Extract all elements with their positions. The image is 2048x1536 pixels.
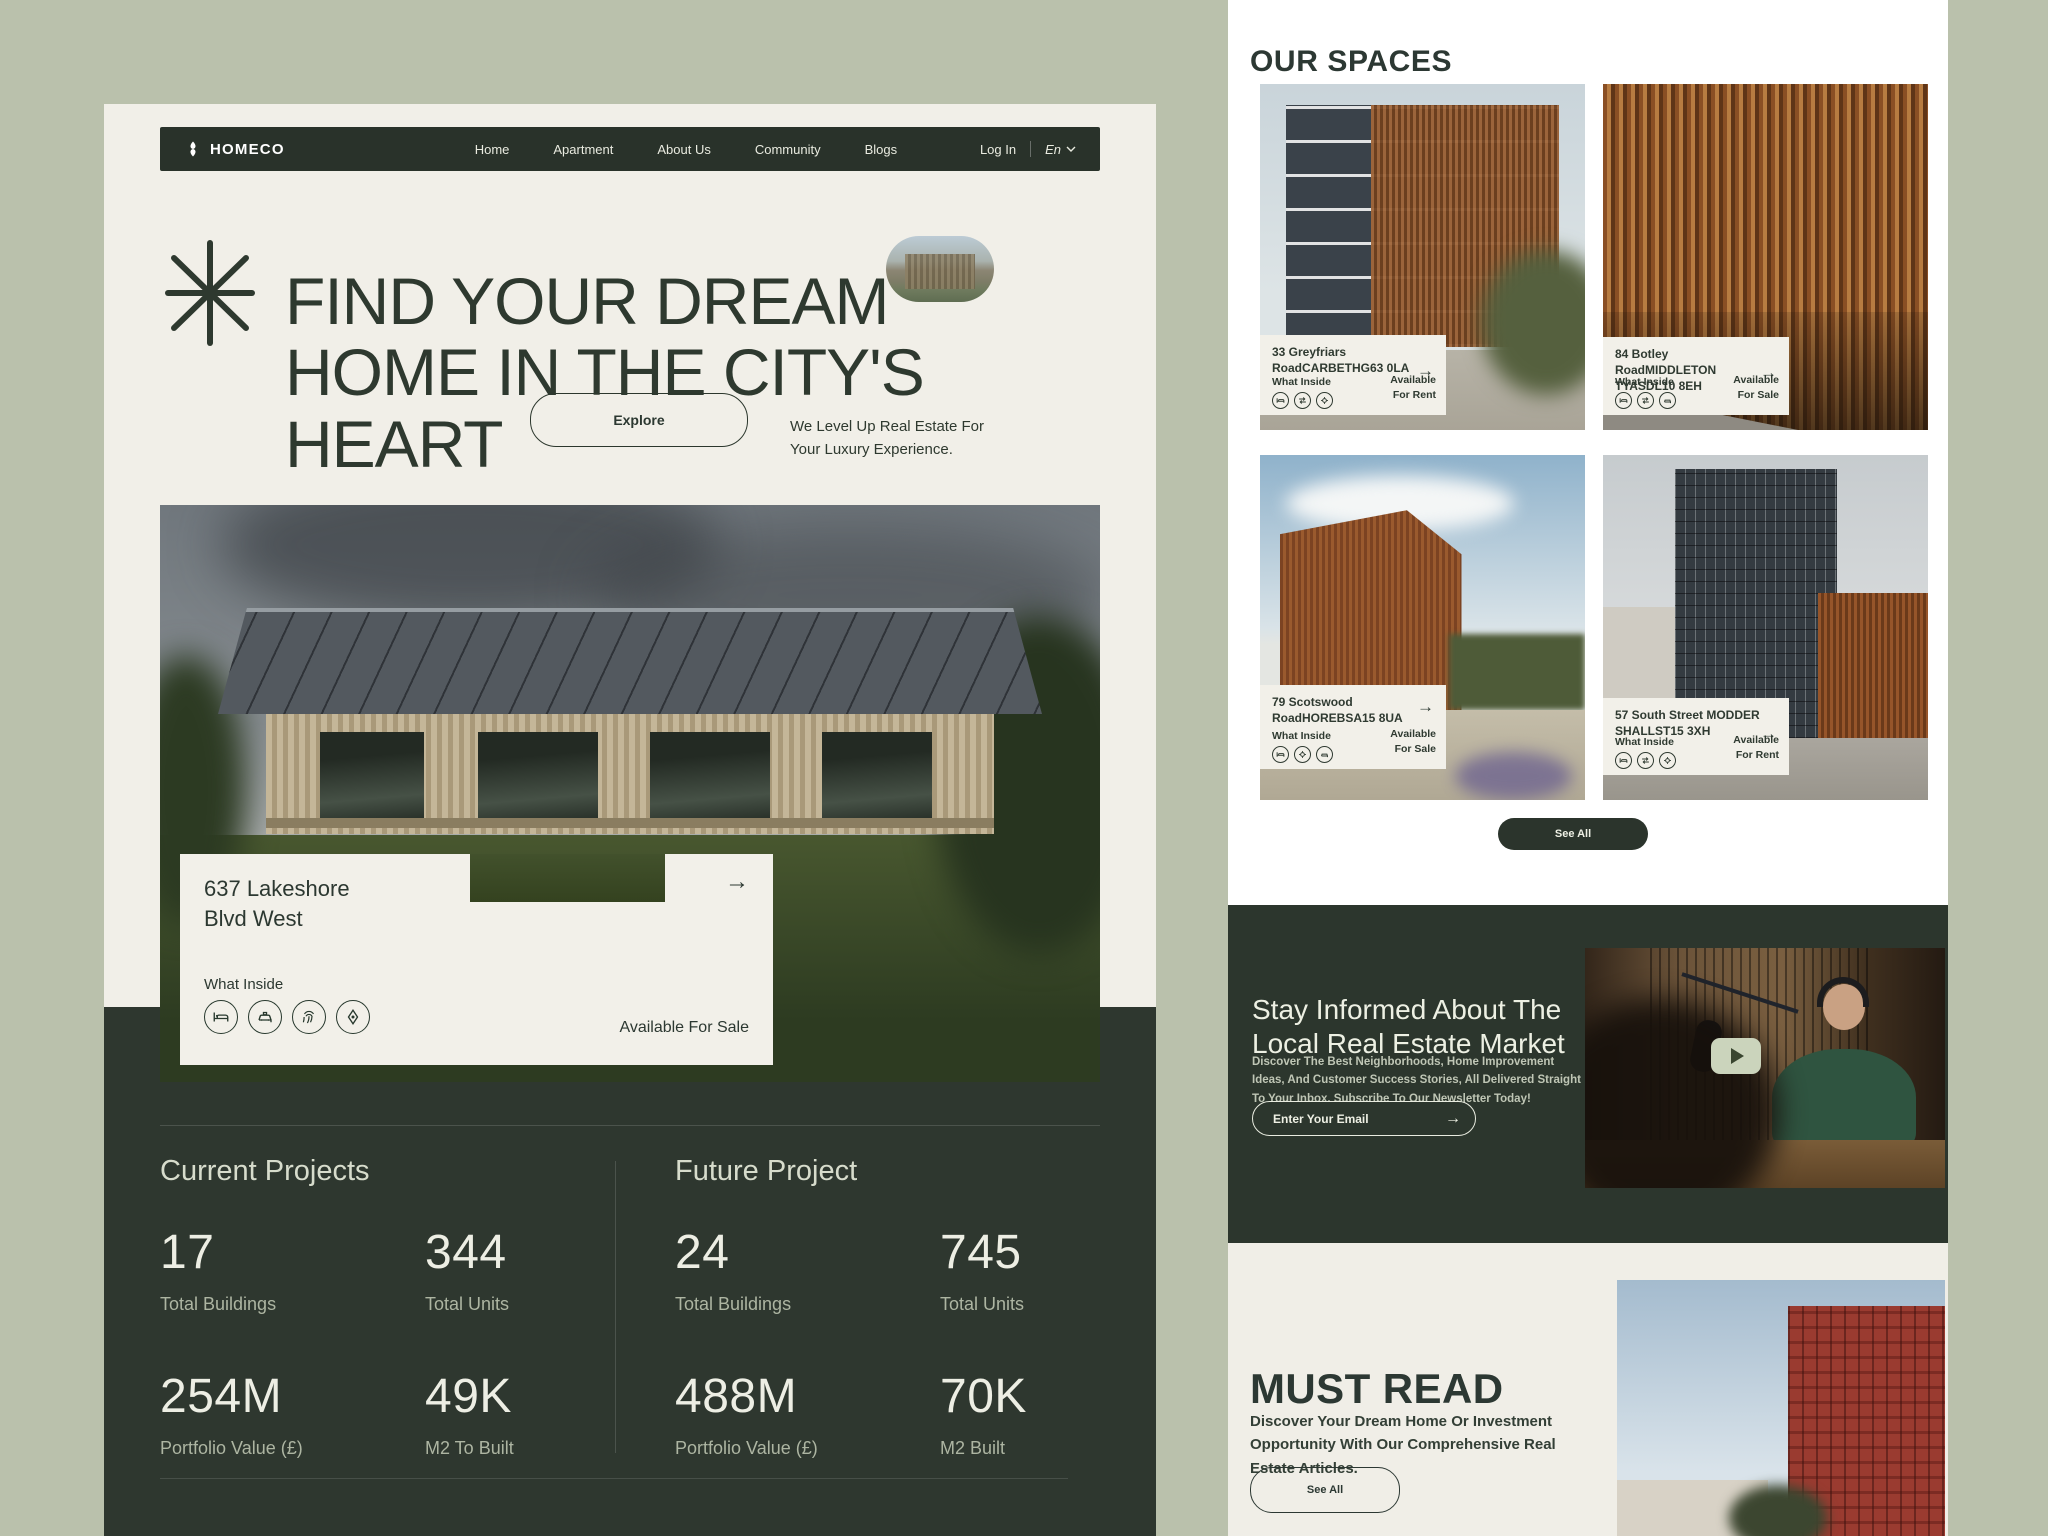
transfer-arrows-icon[interactable] xyxy=(1294,392,1311,409)
stat-label: Portfolio Value (£) xyxy=(160,1438,410,1459)
transfer-arrows-icon[interactable] xyxy=(1637,392,1654,409)
bed-icon[interactable] xyxy=(1615,392,1632,409)
what-inside-label: What Inside xyxy=(204,976,283,993)
logo-text: HOMECO xyxy=(210,141,285,158)
gear-icon[interactable] xyxy=(1659,752,1676,769)
car-icon[interactable] xyxy=(1316,746,1333,763)
must-read-title: MUST READ xyxy=(1250,1365,1503,1413)
hero-tagline: We Level Up Real Estate For Your Luxury … xyxy=(790,415,984,462)
photo-layer xyxy=(1772,1049,1916,1155)
play-button[interactable] xyxy=(1711,1038,1761,1074)
logo-icon xyxy=(184,140,202,158)
availability-status: Available For Rent xyxy=(1390,373,1436,405)
what-inside-label: What Inside xyxy=(1272,376,1331,388)
stat-value: 488M xyxy=(675,1369,925,1424)
photo-layer xyxy=(478,732,598,818)
nav-item-blogs[interactable]: Blogs xyxy=(865,142,898,157)
language-label: En xyxy=(1045,142,1061,157)
availability-status: Available For Sale xyxy=(619,1019,749,1037)
property-info-overlay: 33 Greyfriars RoadCARBETHG63 0LA → What … xyxy=(1260,335,1446,415)
availability-status: Available For Rent xyxy=(1733,733,1779,765)
property-info-overlay: 57 South Street MODDER SHALLST15 3XH → W… xyxy=(1603,698,1789,775)
our-spaces-title: OUR SPACES xyxy=(1250,45,1452,79)
language-selector[interactable]: En xyxy=(1045,142,1076,157)
podcast-video-thumbnail xyxy=(1585,948,1945,1188)
stat-item: 70K M2 Built xyxy=(940,1369,1156,1459)
amenity-icons xyxy=(1272,392,1333,409)
divider xyxy=(160,1478,1068,1479)
property-card[interactable]: 33 Greyfriars RoadCARBETHG63 0LA → What … xyxy=(1260,84,1585,430)
bed-icon[interactable] xyxy=(204,1000,238,1034)
what-inside-label: What Inside xyxy=(1615,376,1674,388)
availability-status: Available For Sale xyxy=(1733,373,1779,405)
our-spaces-section: OUR SPACES 33 Greyfriars RoadCARBETHG63 … xyxy=(1228,0,1948,905)
email-subscribe-field[interactable]: → xyxy=(1252,1101,1476,1136)
stat-item: 24 Total Buildings xyxy=(675,1225,925,1315)
nav-item-community[interactable]: Community xyxy=(755,142,821,157)
hero-house-photo: 637 Lakeshore Blvd West → What Inside xyxy=(160,505,1100,1082)
photo-layer xyxy=(230,608,1030,840)
stat-item: 745 Total Units xyxy=(940,1225,1156,1315)
chevron-down-icon xyxy=(1066,146,1076,153)
listing-address: 637 Lakeshore Blvd West xyxy=(204,874,350,933)
photo-layer xyxy=(650,732,770,818)
divider xyxy=(160,1125,1100,1126)
photo-layer xyxy=(905,254,974,288)
stat-value: 70K xyxy=(940,1369,1156,1424)
gear-icon[interactable] xyxy=(1316,392,1333,409)
availability-status: Available For Sale xyxy=(1390,727,1436,759)
stat-item: 49K M2 To Built xyxy=(425,1369,675,1459)
see-all-button[interactable]: See All xyxy=(1498,818,1648,850)
stat-value: 254M xyxy=(160,1369,410,1424)
stat-item: 17 Total Buildings xyxy=(160,1225,410,1315)
photo-layer xyxy=(822,732,932,818)
stat-label: Total Units xyxy=(940,1294,1156,1315)
photo-layer xyxy=(1455,752,1572,800)
property-card[interactable]: 84 Botley RoadMIDDLETON TYASDL10 8EH → W… xyxy=(1603,84,1928,430)
email-input[interactable] xyxy=(1271,1111,1437,1127)
property-info-overlay: 84 Botley RoadMIDDLETON TYASDL10 8EH → W… xyxy=(1603,337,1789,415)
fingerprint-icon[interactable] xyxy=(292,1000,326,1034)
newsletter-section: Stay Informed About The Local Real Estat… xyxy=(1228,905,1948,1243)
gear-icon[interactable] xyxy=(1294,746,1311,763)
transfer-arrows-icon[interactable] xyxy=(1637,752,1654,769)
current-projects-title: Current Projects xyxy=(160,1155,370,1188)
bed-icon[interactable] xyxy=(1272,392,1289,409)
play-icon xyxy=(1731,1048,1744,1064)
nav-item-home[interactable]: Home xyxy=(475,142,510,157)
page: HOMECO Home Apartment About Us Community… xyxy=(0,0,2048,1536)
stat-label: Total Units xyxy=(425,1294,675,1315)
must-read-section: MUST READ Discover Your Dream Home Or In… xyxy=(1228,1243,1948,1536)
compass-icon[interactable] xyxy=(336,1000,370,1034)
photo-layer xyxy=(266,818,994,828)
nav-item-apartment[interactable]: Apartment xyxy=(553,142,613,157)
stat-label: M2 Built xyxy=(940,1438,1156,1459)
stat-label: Total Buildings xyxy=(675,1294,925,1315)
arrow-right-icon[interactable]: → xyxy=(725,868,749,896)
nav-divider xyxy=(1030,141,1031,157)
car-icon[interactable] xyxy=(248,1000,282,1034)
photo-layer xyxy=(218,608,1042,714)
amenity-icons xyxy=(1615,392,1676,409)
stat-label: M2 To Built xyxy=(425,1438,675,1459)
article-building-photo xyxy=(1617,1280,1945,1536)
property-card[interactable]: 57 South Street MODDER SHALLST15 3XH → W… xyxy=(1603,455,1928,800)
hero-building-photo xyxy=(886,236,994,302)
stat-value: 24 xyxy=(675,1225,925,1280)
asterisk-icon xyxy=(160,240,260,346)
stat-item: 344 Total Units xyxy=(425,1225,675,1315)
amenity-icons xyxy=(1272,746,1333,763)
submit-arrow-icon[interactable]: → xyxy=(1445,1110,1461,1128)
bed-icon[interactable] xyxy=(1272,746,1289,763)
photo-layer xyxy=(320,732,424,818)
listing-card-notch xyxy=(470,854,665,902)
nav-links: Home Apartment About Us Community Blogs xyxy=(475,142,897,157)
photo-layer xyxy=(1818,593,1929,738)
newsletter-title: Stay Informed About The Local Real Estat… xyxy=(1252,993,1565,1061)
nav-right: Log In En xyxy=(980,141,1076,157)
stat-item: 488M Portfolio Value (£) xyxy=(675,1369,925,1459)
nav-item-about-us[interactable]: About Us xyxy=(657,142,710,157)
property-card[interactable]: 79 Scotswood RoadHOREBSA15 8UA → What In… xyxy=(1260,455,1585,800)
photo-layer xyxy=(1449,634,1586,710)
stat-item: 254M Portfolio Value (£) xyxy=(160,1369,410,1459)
stat-value: 344 xyxy=(425,1225,675,1280)
see-all-articles-button[interactable]: See All xyxy=(1250,1467,1400,1513)
explore-label: Explore xyxy=(613,412,664,428)
showcase-panel: OUR SPACES 33 Greyfriars RoadCARBETHG63 … xyxy=(1228,0,1948,1536)
listing-card[interactable]: 637 Lakeshore Blvd West → What Inside xyxy=(180,854,773,1065)
stat-label: Total Buildings xyxy=(160,1294,410,1315)
photo-layer xyxy=(1280,510,1462,710)
what-inside-label: What Inside xyxy=(1615,736,1674,748)
arrow-right-icon[interactable]: → xyxy=(1417,697,1434,717)
newsletter-body: Discover The Best Neighborhoods, Home Im… xyxy=(1252,1053,1590,1109)
navbar: HOMECO Home Apartment About Us Community… xyxy=(160,127,1100,171)
amenity-icons xyxy=(1615,752,1676,769)
see-all-label: See All xyxy=(1555,828,1591,840)
homeco-site-panel: HOMECO Home Apartment About Us Community… xyxy=(104,104,1156,1536)
stat-value: 745 xyxy=(940,1225,1156,1280)
car-icon[interactable] xyxy=(1659,392,1676,409)
see-all-label: See All xyxy=(1307,1484,1343,1496)
stat-value: 17 xyxy=(160,1225,410,1280)
explore-button[interactable]: Explore xyxy=(530,393,748,447)
bed-icon[interactable] xyxy=(1615,752,1632,769)
property-info-overlay: 79 Scotswood RoadHOREBSA15 8UA → What In… xyxy=(1260,685,1446,769)
what-inside-label: What Inside xyxy=(1272,730,1331,742)
stat-value: 49K xyxy=(425,1369,675,1424)
amenity-icons xyxy=(204,1000,370,1034)
login-button[interactable]: Log In xyxy=(980,142,1016,157)
property-address: 79 Scotswood RoadHOREBSA15 8UA xyxy=(1272,694,1422,726)
future-project-title: Future Project xyxy=(675,1155,857,1188)
stat-label: Portfolio Value (£) xyxy=(675,1438,925,1459)
logo[interactable]: HOMECO xyxy=(184,140,285,158)
